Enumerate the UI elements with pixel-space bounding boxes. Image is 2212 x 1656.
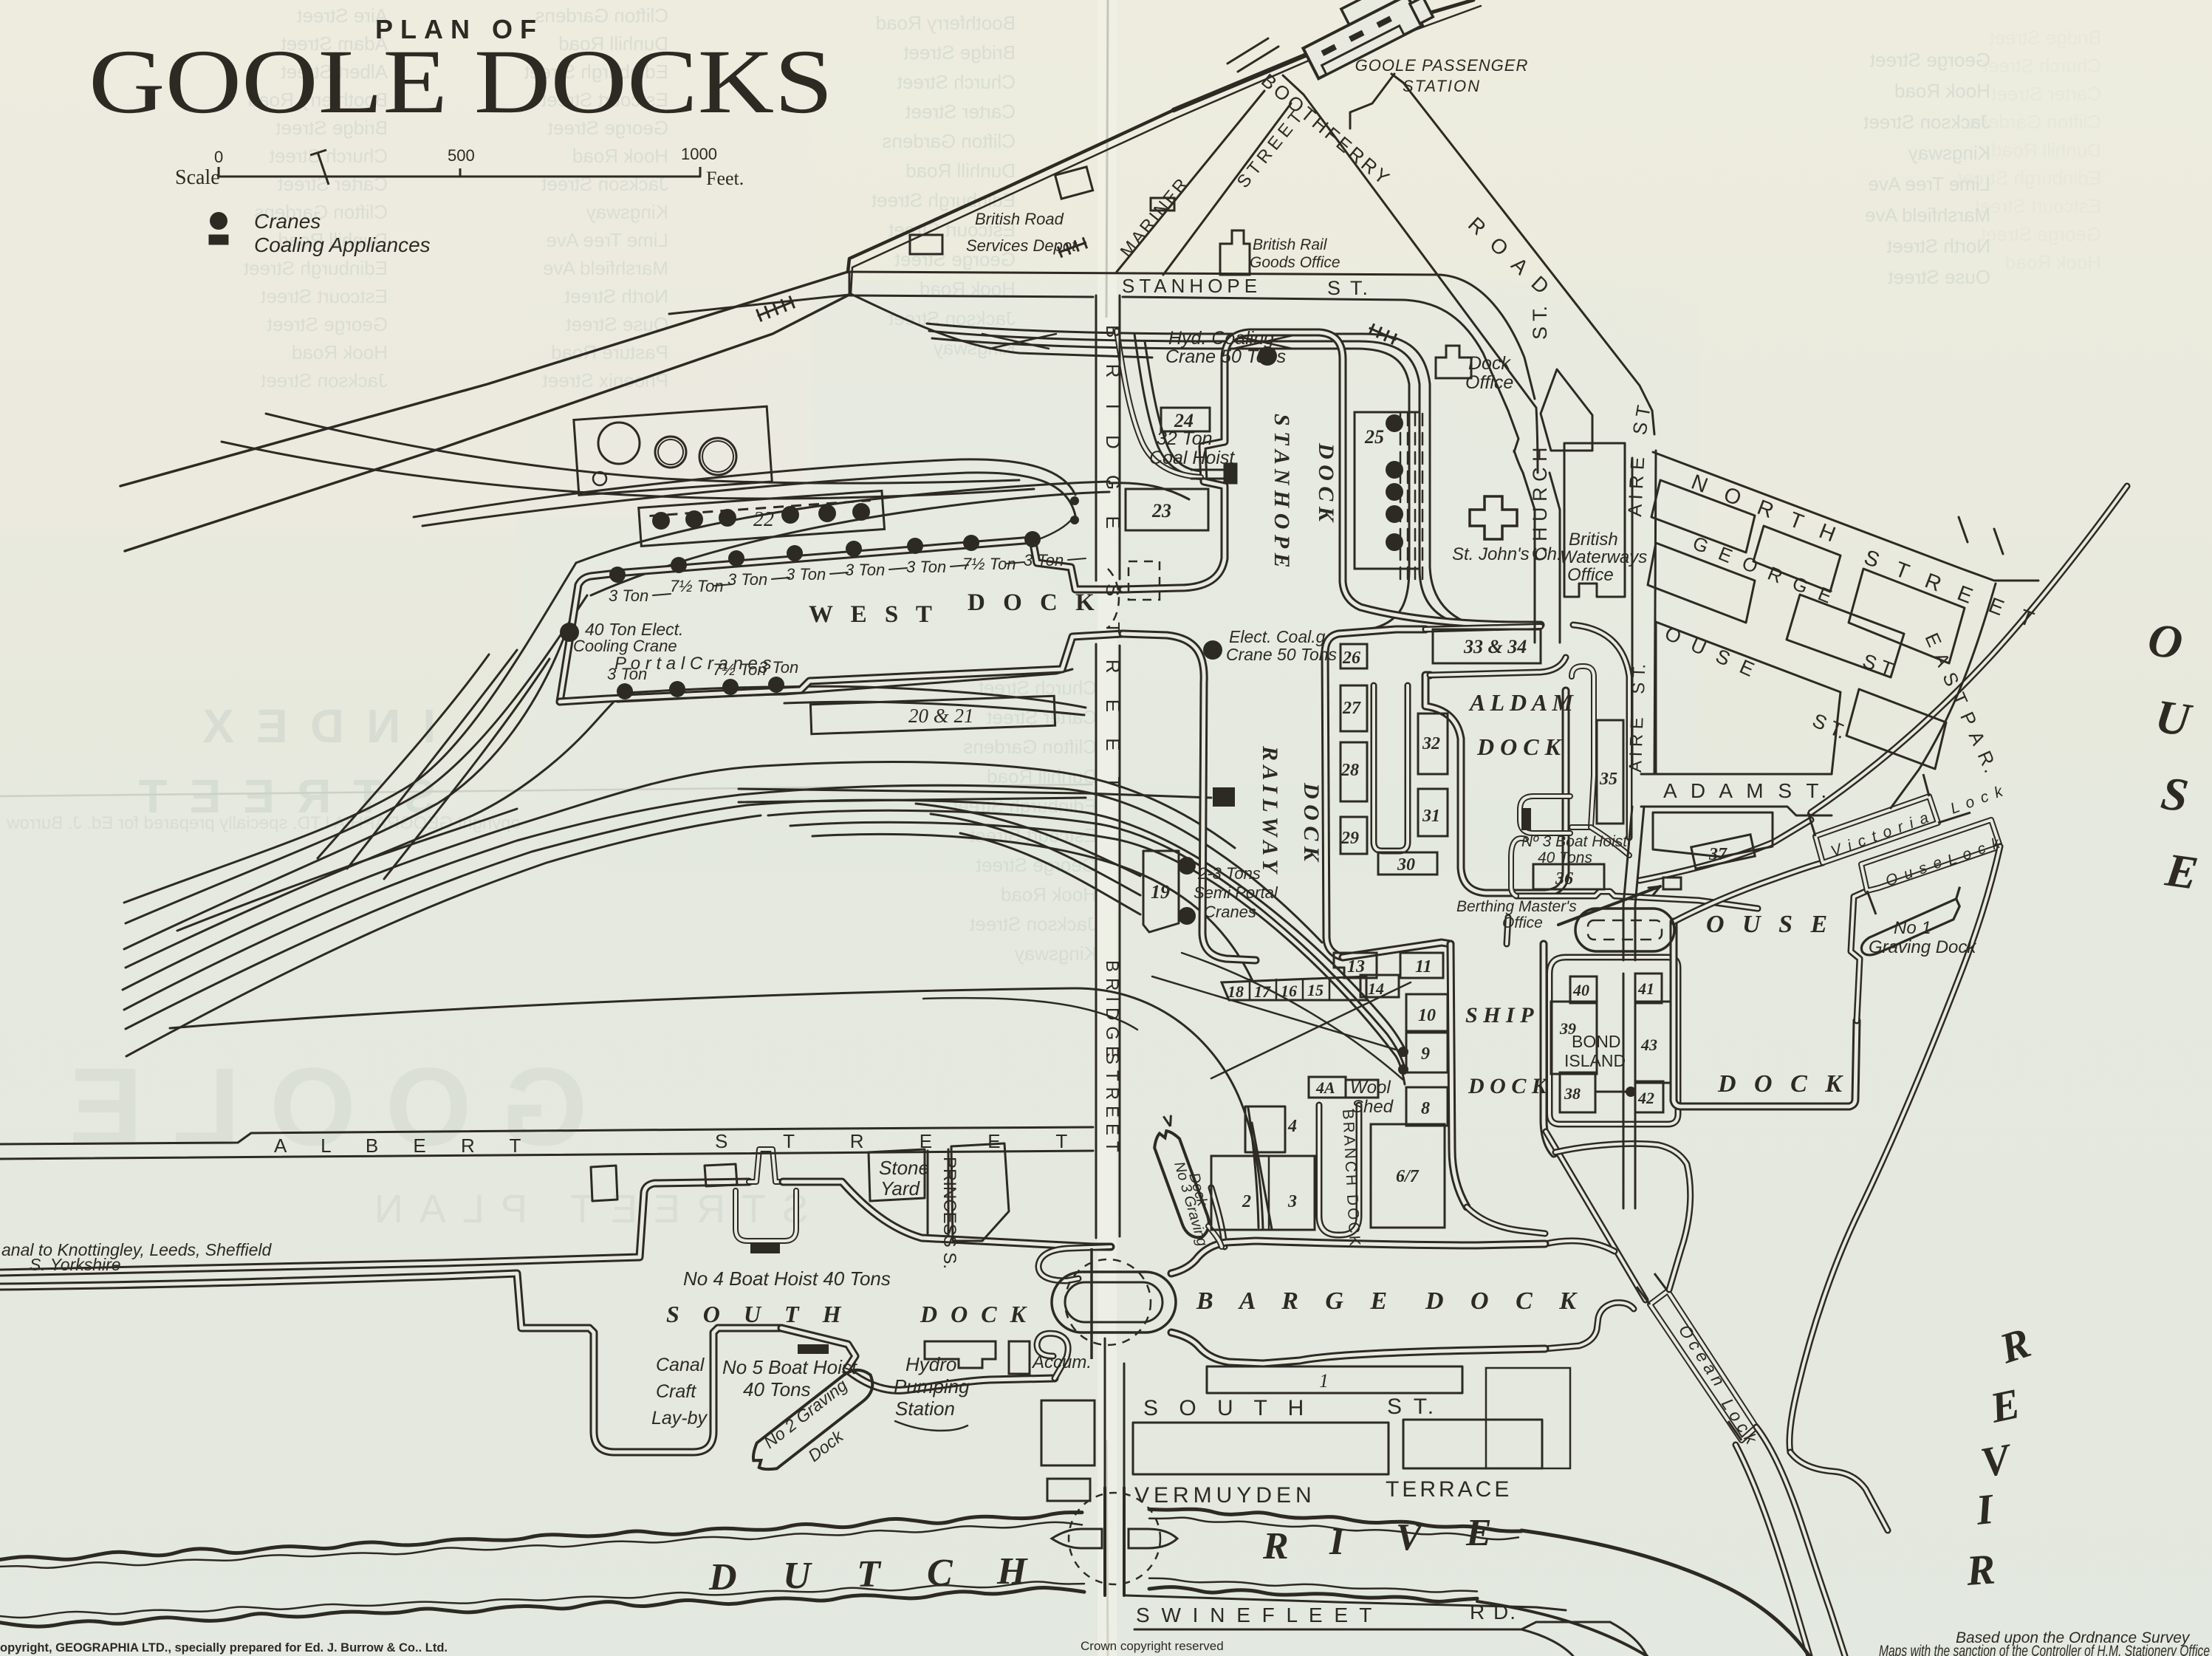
svg-text:No 1: No 1 <box>1894 918 1931 938</box>
svg-text:23: 23 <box>1151 500 1171 521</box>
svg-text:15: 15 <box>1307 981 1324 999</box>
svg-text:Dock: Dock <box>1468 353 1511 374</box>
svg-text:A I R E: A I R E <box>1623 456 1648 517</box>
svg-text:2: 2 <box>1242 1192 1251 1211</box>
svg-text:Nº 3 Boat Hoist: Nº 3 Boat Hoist <box>1521 833 1628 850</box>
svg-text:1000: 1000 <box>681 145 717 163</box>
svg-text:Carter Street: Carter Street <box>1990 83 2101 105</box>
svg-text:Cranes: Cranes <box>254 210 321 233</box>
svg-text:Kingsway: Kingsway <box>1015 942 1097 965</box>
svg-text:ISLAND: ISLAND <box>1564 1051 1626 1070</box>
svg-text:3 Ton: 3 Ton <box>845 561 885 579</box>
svg-text:Hyd. Coaling: Hyd. Coaling <box>1168 328 1274 349</box>
svg-text:41: 41 <box>1637 979 1654 998</box>
svg-text:S T R E E T: S T R E E T <box>1102 584 1124 798</box>
svg-text:S O U T H: S O U T H <box>1143 1396 1311 1420</box>
svg-text:35: 35 <box>1599 770 1617 789</box>
svg-text:Crane 50 Tons: Crane 50 Tons <box>1226 645 1338 664</box>
svg-text:0: 0 <box>214 148 223 166</box>
svg-text:Marshfield Ave: Marshfield Ave <box>543 257 668 279</box>
svg-text:GOOLE DOCKS: GOOLE DOCKS <box>89 31 833 132</box>
svg-text:STANHOPE: STANHOPE <box>1122 275 1261 297</box>
svg-text:STREET PLAN: STREET PLAN <box>358 1187 809 1231</box>
svg-text:GOOLE PASSENGER: GOOLE PASSENGER <box>1355 56 1529 75</box>
svg-text:Office: Office <box>1567 565 1614 585</box>
svg-text:Goods Office: Goods Office <box>1250 254 1340 271</box>
svg-text:37: 37 <box>1708 845 1728 864</box>
svg-text:Dunhill Road: Dunhill Road <box>1991 139 2101 161</box>
svg-text:Cooling Crane: Cooling Crane <box>573 637 677 655</box>
svg-text:S T.: S T. <box>1629 663 1649 694</box>
svg-text:British: British <box>1569 530 1618 550</box>
svg-text:Graving Dock: Graving Dock <box>1869 937 1977 957</box>
svg-text:S T R E E T: S T R E E T <box>715 1130 1092 1152</box>
svg-text:S. Yorkshire: S. Yorkshire <box>30 1255 121 1274</box>
svg-text:C H U R C H: C H U R C H <box>1529 448 1551 562</box>
svg-text:Canal: Canal <box>656 1355 705 1375</box>
svg-text:32 Ton: 32 Ton <box>1157 428 1213 449</box>
svg-text:S T A N H O P E: S T A N H O P E <box>1270 414 1294 568</box>
svg-text:Hook Road: Hook Road <box>1001 883 1097 906</box>
svg-text:17: 17 <box>1254 982 1271 1001</box>
svg-text:V: V <box>1396 1516 1425 1559</box>
svg-text:Church Street: Church Street <box>269 145 388 167</box>
svg-text:29: 29 <box>1340 829 1359 848</box>
svg-text:2-3 Tons: 2-3 Tons <box>1197 864 1261 883</box>
svg-text:3 Ton: 3 Ton <box>1024 551 1064 569</box>
svg-text:S T.: S T. <box>1529 306 1551 340</box>
svg-text:32: 32 <box>1422 734 1440 753</box>
svg-text:Office: Office <box>1502 914 1543 931</box>
svg-text:31: 31 <box>1422 807 1440 826</box>
svg-text:3 Ton: 3 Ton <box>727 570 767 589</box>
svg-text:D O C K: D O C K <box>920 1301 1030 1327</box>
svg-text:R A I L W A Y: R A I L W A Y <box>1258 745 1282 875</box>
svg-text:D O C K: D O C K <box>1717 1070 1848 1098</box>
svg-text:Clifton Gardens: Clifton Gardens <box>882 130 1016 152</box>
svg-text:E: E <box>1465 1512 1492 1554</box>
svg-text:Clifton Gardens: Clifton Gardens <box>963 736 1097 758</box>
svg-text:3 Ton: 3 Ton <box>609 586 648 605</box>
svg-text:Scale: Scale <box>175 166 220 189</box>
svg-text:S T.: S T. <box>1327 277 1370 299</box>
svg-text:R D.: R D. <box>1470 1601 1517 1624</box>
svg-text:D O C K: D O C K <box>968 589 1100 616</box>
svg-text:D: D <box>708 1556 737 1598</box>
svg-text:40: 40 <box>1572 981 1589 999</box>
svg-text:Church Street: Church Street <box>897 71 1016 93</box>
svg-text:19: 19 <box>1151 881 1170 903</box>
svg-text:Craft: Craft <box>656 1381 696 1402</box>
svg-text:Estcourt Street: Estcourt Street <box>1973 195 2101 217</box>
svg-text:28: 28 <box>1340 761 1359 780</box>
svg-text:Dunhill Road: Dunhill Road <box>905 160 1016 182</box>
svg-text:33 & 34: 33 & 34 <box>1463 636 1527 657</box>
svg-text:Estcourt Street: Estcourt Street <box>260 285 388 307</box>
svg-text:A L B E R T: A L B E R T <box>274 1135 535 1157</box>
svg-text:R: R <box>1964 1544 1996 1595</box>
svg-text:Yard: Yard <box>880 1177 921 1200</box>
svg-text:Jackson Street: Jackson Street <box>260 369 388 391</box>
svg-text:Aire Street: Aire Street <box>296 4 388 27</box>
svg-text:1: 1 <box>1319 1370 1329 1392</box>
svg-text:B A R G E: B A R G E <box>1196 1287 1397 1315</box>
svg-text:11: 11 <box>1415 957 1432 976</box>
svg-text:Crown copyright reserved: Crown copyright reserved <box>1081 1639 1224 1653</box>
svg-text:O: O <box>2145 613 2186 670</box>
svg-text:S W I N E F L E E T: S W I N E F L E E T <box>1136 1604 1374 1626</box>
svg-text:27: 27 <box>1342 699 1361 718</box>
svg-text:Feet.: Feet. <box>706 168 744 189</box>
svg-text:Berthing Master's: Berthing Master's <box>1456 898 1577 915</box>
svg-text:B R I D G E: B R I D G E <box>1102 325 1124 539</box>
svg-text:Shed: Shed <box>1352 1097 1394 1117</box>
svg-text:14: 14 <box>1368 979 1384 998</box>
svg-text:20 & 21: 20 & 21 <box>908 705 974 727</box>
svg-text:H: H <box>996 1550 1028 1592</box>
svg-text:6/7: 6/7 <box>1396 1167 1420 1186</box>
svg-text:North Street: North Street <box>564 285 668 307</box>
svg-text:Clifton Gardens: Clifton Gardens <box>535 4 668 27</box>
svg-text:30: 30 <box>1397 855 1415 875</box>
svg-text:36: 36 <box>1555 869 1573 889</box>
svg-text:VERMUYDEN: VERMUYDEN <box>1134 1483 1316 1508</box>
svg-text:500: 500 <box>448 146 475 165</box>
svg-text:42: 42 <box>1637 1089 1654 1107</box>
svg-text:Services Depot: Services Depot <box>966 236 1077 255</box>
svg-text:25: 25 <box>1364 426 1384 448</box>
svg-text:Lime Tree Ave: Lime Tree Ave <box>1868 173 1990 195</box>
svg-text:D O C K: D O C K <box>1299 782 1324 863</box>
svg-text:No 4 Boat Hoist 40 Tons: No 4 Boat Hoist 40 Tons <box>683 1267 891 1290</box>
svg-text:D O C K: D O C K <box>1314 442 1338 523</box>
svg-text:North Street: North Street <box>1886 235 1990 257</box>
svg-text:Boothferry Road: Boothferry Road <box>876 12 1016 34</box>
svg-text:4: 4 <box>1287 1117 1297 1136</box>
svg-text:A D A M S T.: A D A M S T. <box>1663 779 1831 802</box>
svg-text:BOND: BOND <box>1572 1032 1620 1051</box>
svg-text:10: 10 <box>1418 1006 1436 1025</box>
svg-text:Jackson Street: Jackson Street <box>969 913 1097 935</box>
svg-text:22: 22 <box>753 508 774 531</box>
svg-text:40 Tons: 40 Tons <box>743 1378 811 1400</box>
svg-text:British Road: British Road <box>975 210 1064 228</box>
svg-text:A L D A M: A L D A M <box>1468 689 1574 716</box>
svg-text:TERRACE: TERRACE <box>1386 1477 1512 1502</box>
svg-text:Carter Street: Carter Street <box>905 100 1016 123</box>
svg-text:4A: 4A <box>1315 1078 1335 1097</box>
svg-text:18: 18 <box>1227 982 1244 1001</box>
svg-text:C: C <box>927 1552 953 1594</box>
svg-text:A I R E: A I R E <box>1626 717 1648 773</box>
svg-text:3 Ton: 3 Ton <box>906 558 946 576</box>
svg-text:Hook Road: Hook Road <box>1894 80 1990 102</box>
svg-text:D O C K: D O C K <box>1425 1287 1586 1315</box>
svg-text:I: I <box>1329 1521 1346 1563</box>
svg-text:O U S E: O U S E <box>1706 911 1833 938</box>
svg-text:8: 8 <box>1421 1099 1430 1118</box>
svg-text:Edinburgh Street: Edinburgh Street <box>243 257 388 279</box>
svg-text:Hook Road: Hook Road <box>572 145 668 167</box>
svg-text:16: 16 <box>1281 982 1297 1000</box>
svg-text:Bridge Street: Bridge Street <box>1988 27 2101 49</box>
svg-text:George Street: George Street <box>1869 49 1990 71</box>
svg-text:Hook Road: Hook Road <box>292 341 388 363</box>
svg-text:13: 13 <box>1347 957 1365 976</box>
svg-text:Maps with the sanction of the: Maps with the sanction of the Controller… <box>1879 1643 2210 1656</box>
svg-text:Phoenix Street: Phoenix Street <box>542 369 668 391</box>
svg-text:PRINCESS S.: PRINCESS S. <box>939 1157 959 1269</box>
svg-text:George Street: George Street <box>267 313 388 335</box>
svg-text:INDEX: INDEX <box>180 699 436 753</box>
svg-text:Hook Road: Hook Road <box>2005 251 2101 273</box>
svg-text:Stone: Stone <box>879 1157 929 1179</box>
svg-text:Lay-by: Lay-by <box>651 1408 708 1429</box>
svg-text:U: U <box>783 1555 812 1597</box>
svg-text:Station: Station <box>895 1397 955 1420</box>
svg-text:Cranes: Cranes <box>1204 903 1256 921</box>
svg-text:Waterways: Waterways <box>1560 547 1647 567</box>
svg-text:STREET: STREET <box>1102 1053 1122 1158</box>
svg-text:Pumping: Pumping <box>894 1375 970 1397</box>
svg-text:S T.: S T. <box>1387 1395 1437 1419</box>
svg-text:D O C K: D O C K <box>1476 733 1563 760</box>
svg-text:9: 9 <box>1421 1044 1430 1064</box>
svg-text:Kingsway: Kingsway <box>586 201 668 223</box>
svg-text:Marshfield Ave: Marshfield Ave <box>1865 204 1990 226</box>
svg-text:43: 43 <box>1640 1036 1657 1054</box>
svg-text:opyright, GEOGRAPHIA LTD.,: opyright, GEOGRAPHIA LTD., specially pre… <box>0 1641 448 1655</box>
svg-text:S O U T H: S O U T H <box>666 1301 849 1327</box>
svg-text:Semi Portal: Semi Portal <box>1194 883 1278 902</box>
svg-text:Kingsway: Kingsway <box>1908 142 1990 164</box>
svg-text:BRIDGE: BRIDGE <box>1102 960 1122 1064</box>
svg-text:Bridge Street: Bridge Street <box>903 41 1016 64</box>
svg-text:3 Ton: 3 Ton <box>786 565 826 584</box>
svg-text:R: R <box>1262 1525 1289 1567</box>
svg-text:No 5 Boat Hoist: No 5 Boat Hoist <box>722 1356 858 1378</box>
svg-text:3: 3 <box>1287 1192 1297 1211</box>
svg-text:Wool: Wool <box>1350 1078 1391 1098</box>
svg-text:Lime Tree Ave: Lime Tree Ave <box>546 229 668 251</box>
svg-text:P o r t a l C r a n e s: P o r t a l C r a n e s <box>614 654 772 674</box>
svg-text:Coal Hoist: Coal Hoist <box>1149 448 1235 468</box>
svg-text:Ouse Street: Ouse Street <box>1887 266 1990 288</box>
svg-text:British Rail: British Rail <box>1253 236 1328 253</box>
svg-text:38: 38 <box>1564 1084 1581 1103</box>
svg-text:Church Street: Church Street <box>1982 55 2101 77</box>
svg-text:Hydro: Hydro <box>905 1353 956 1375</box>
svg-text:Jackson Street: Jackson Street <box>1863 111 1990 133</box>
svg-text:Office: Office <box>1465 372 1513 393</box>
svg-text:40 Tons: 40 Tons <box>1538 849 1592 866</box>
svg-text:W E S T: W E S T <box>809 601 938 628</box>
svg-text:26: 26 <box>1342 649 1360 668</box>
svg-text:Elect. Coal.g: Elect. Coal.g <box>1229 627 1326 646</box>
svg-text:Coaling Appliances: Coaling Appliances <box>254 233 431 256</box>
svg-text:T: T <box>857 1553 882 1595</box>
svg-text:George Street: George Street <box>1980 223 2101 245</box>
svg-text:D O C K: D O C K <box>1468 1074 1548 1098</box>
svg-text:S H I P: S H I P <box>1465 1003 1534 1027</box>
svg-text:STATION: STATION <box>1403 77 1481 95</box>
svg-text:Accum.: Accum. <box>1031 1352 1092 1372</box>
